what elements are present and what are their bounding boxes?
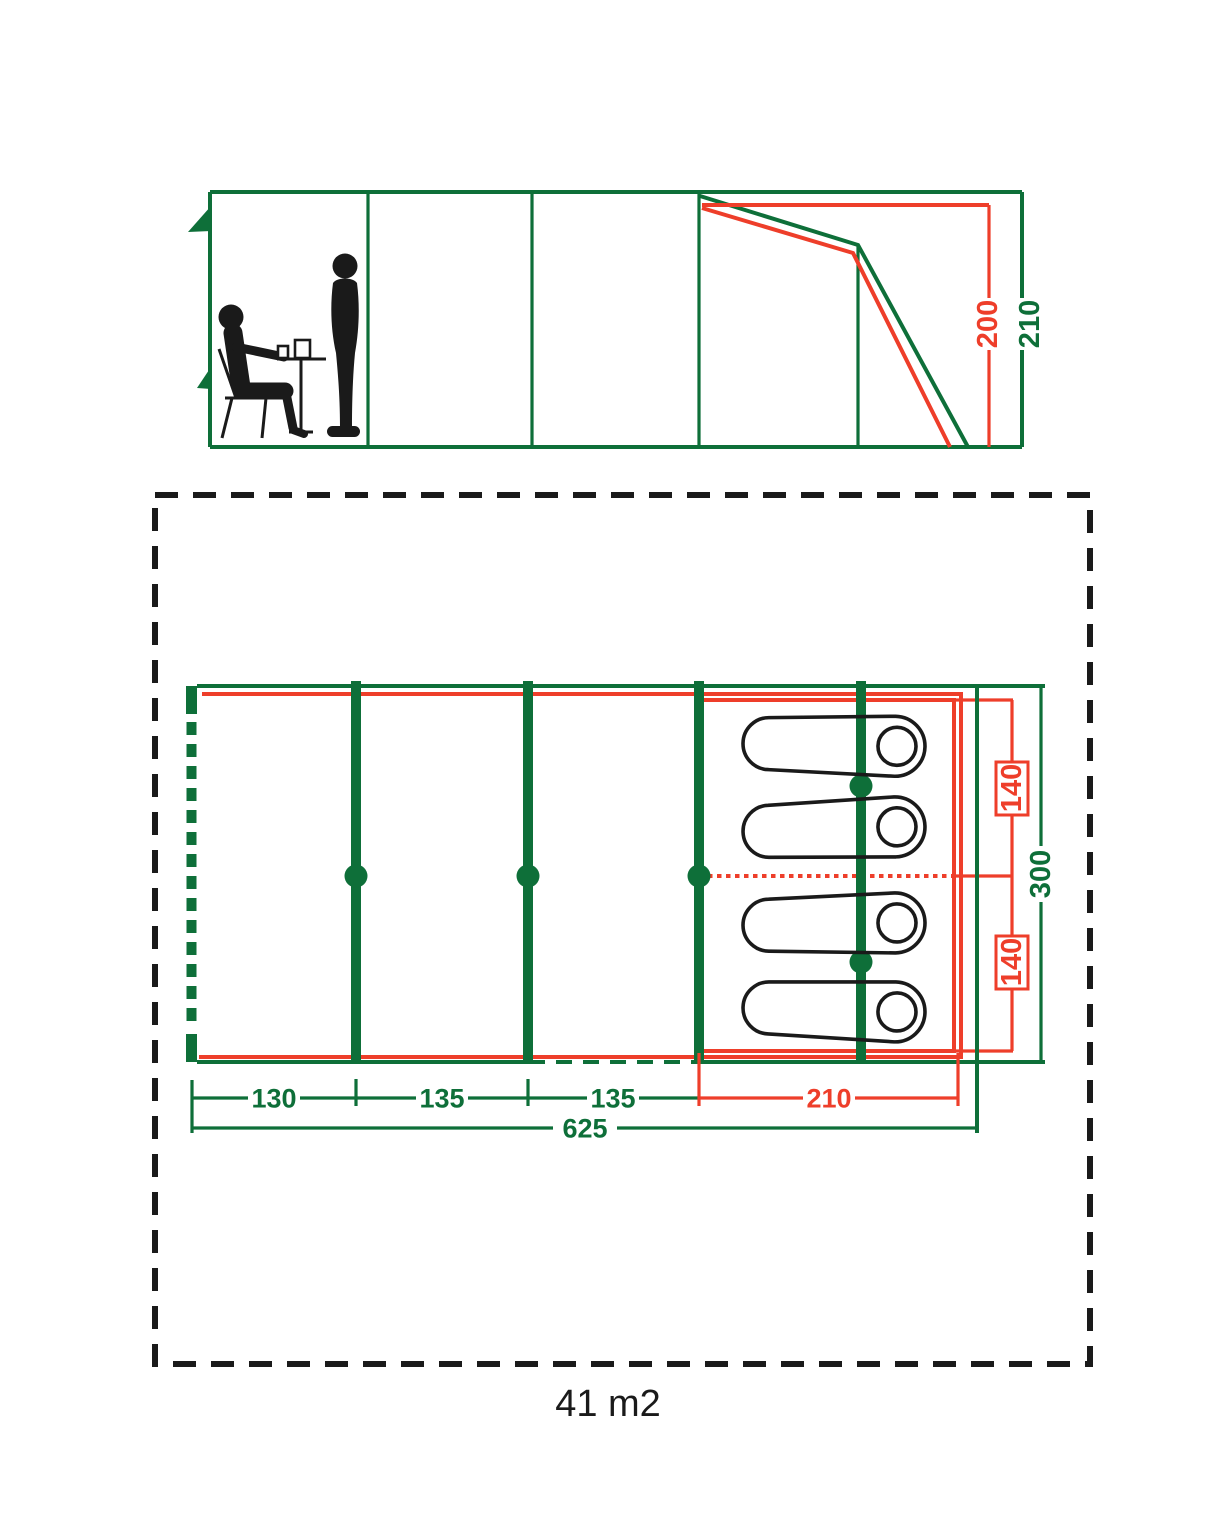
- cup-icon: [278, 346, 288, 358]
- bed-width-label: 140: [996, 764, 1028, 812]
- outer-roof-slope: [700, 196, 968, 447]
- pitch-area-border: [155, 495, 1090, 1364]
- total-length-label: 625: [562, 1114, 607, 1144]
- diagram-canvas: 200 210: [0, 0, 1214, 1537]
- sleeping-bag-icon: [742, 713, 925, 777]
- pole-joint: [345, 865, 368, 888]
- bedroom-length-label: 210: [806, 1084, 851, 1114]
- floor-plan: 140 140 300: [155, 495, 1090, 1425]
- segment-length-label: 130: [251, 1084, 296, 1114]
- inner-roof-slope: [702, 208, 950, 447]
- cup-icon: [295, 340, 310, 358]
- tent-specification-diagram: 200 210: [0, 0, 1214, 1537]
- side-elevation: 200 210: [188, 192, 1046, 447]
- vent-flag-icon: [197, 367, 211, 389]
- bed-width-label: 140: [996, 938, 1028, 986]
- pole-joint: [688, 865, 711, 888]
- total-width-label: 300: [1025, 850, 1057, 898]
- front-entrance-dashed-edge: [186, 686, 197, 1062]
- person-standing-icon: [327, 254, 360, 438]
- total-length-dimension: 625: [192, 1114, 977, 1144]
- inner-height-label: 200: [972, 300, 1004, 348]
- person-seated-at-table-icon: [219, 305, 305, 435]
- segment-length-label: 135: [590, 1084, 635, 1114]
- sleeping-bag-icon: [742, 977, 926, 1043]
- vent-flag-icon: [188, 206, 211, 232]
- segment-length-label: 135: [419, 1084, 464, 1114]
- outer-height-label: 210: [1014, 300, 1046, 348]
- pole-joint: [850, 775, 873, 798]
- sleeping-bag-icon: [742, 796, 926, 862]
- floor-area-label: 41 m2: [555, 1383, 661, 1425]
- sleeping-bag-icon: [742, 892, 925, 955]
- pole-joint: [517, 865, 540, 888]
